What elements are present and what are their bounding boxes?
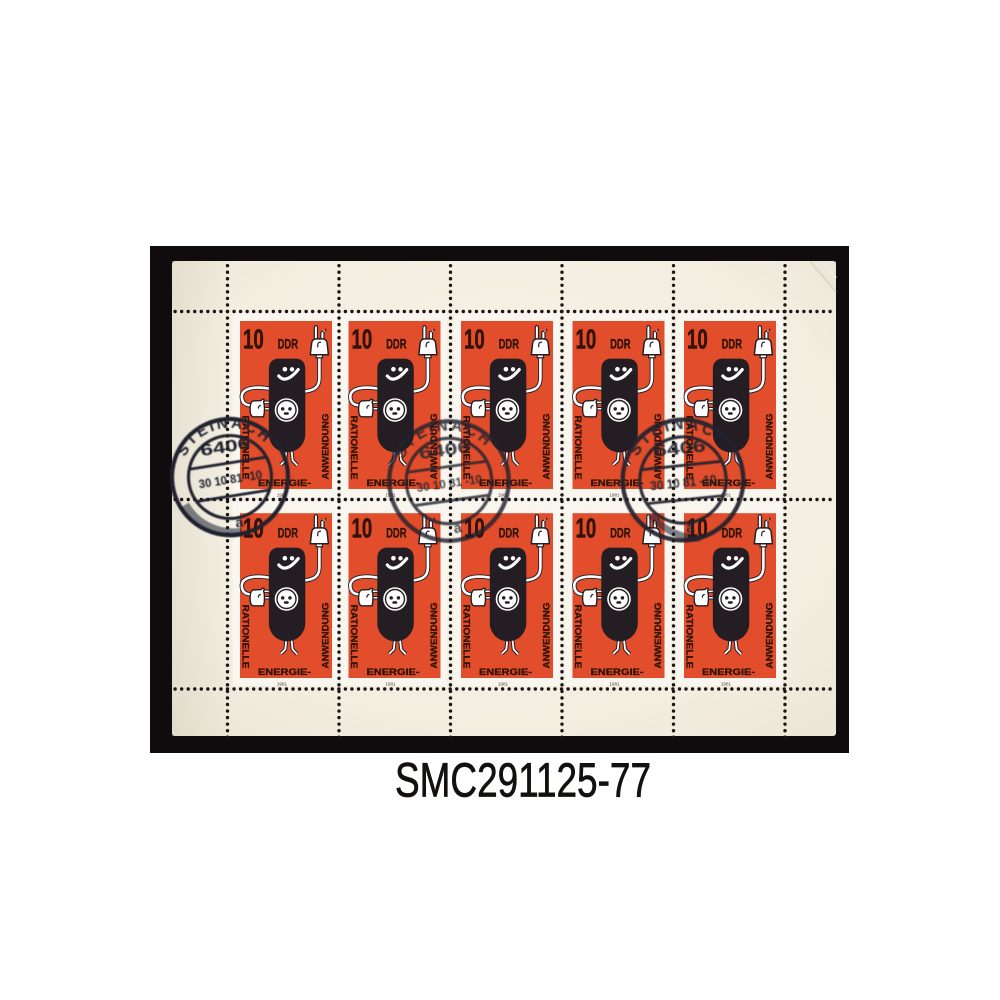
svg-text:SMC291125-77: SMC291125-77 [395,755,651,808]
